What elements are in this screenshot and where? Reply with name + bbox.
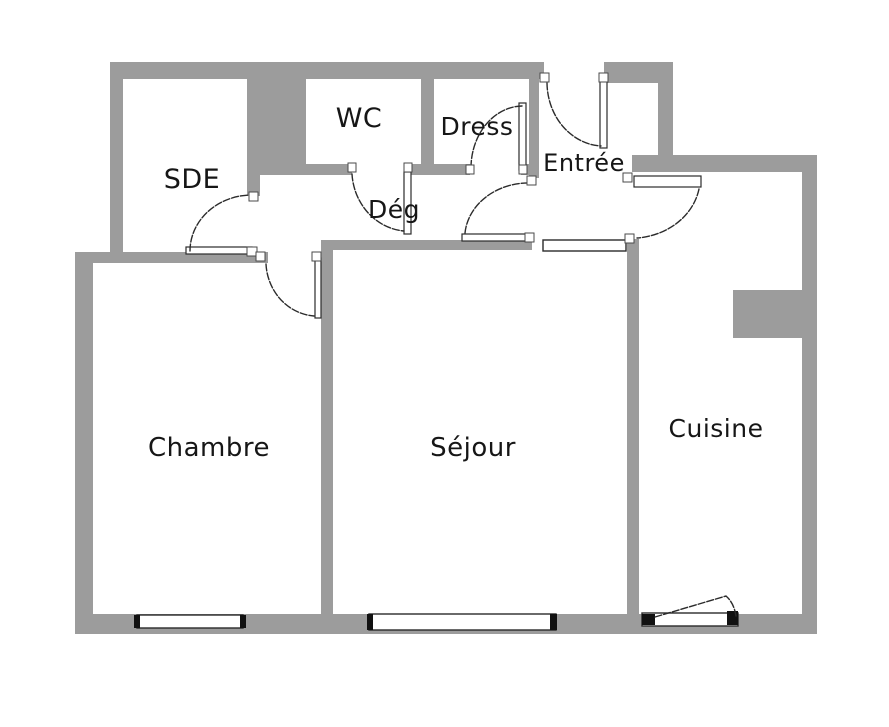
chambre-window [137,615,243,628]
chambre-window-cap-1 [240,615,246,628]
wall-outer-right [802,155,817,634]
wall-sde-left [110,62,123,253]
sejour-window-cap-1 [550,614,557,630]
wall-cuisine-notch [733,290,802,338]
marker-entrance-door-hinge [599,73,608,82]
marker-cuisine-door-jamb [625,234,634,243]
marker-chambre-door-hinge [312,252,321,261]
cuisine-balcony-window-cap-0 [642,614,655,625]
room-label-chambre: Chambre [148,433,270,463]
sde-door-leaf [186,247,252,254]
room-label-sejour: Séjour [430,433,516,463]
room-label-sde: SDE [164,164,221,195]
deg-entree-door-swing-arc [465,183,532,233]
wall-outer-left [75,252,93,634]
dress-door-leaf [519,103,526,170]
cuisine-balcony-window [642,613,738,626]
room-label-entree: Entrée [543,149,625,177]
marker-chambre-door-jamb [256,252,265,261]
marker-sde-door-top-jamb [249,192,258,201]
sejour-window-cap-0 [367,614,373,630]
sejour-window [369,614,556,630]
walls-layer [75,62,817,634]
wall-sejour-cuisine-divider [627,239,639,619]
wall-wc-bottom [247,164,352,175]
wall-entree-right [658,62,673,166]
wall-cuisine-top [632,155,817,172]
entree-cuisine-door-leaf [634,176,701,187]
entree-cuisine-door-swing-arc [637,189,699,238]
marker-dress-door-hinge [519,165,527,174]
marker-wc-door-jamb [348,163,356,172]
room-label-dress: Dress [441,112,514,141]
chambre-door-swing-arc [266,264,314,316]
wall-dress-entree-divider [529,70,539,178]
cuisine-balcony-window-cap-1 [727,611,738,625]
wall-chambre-sejour-divider [321,240,333,619]
marker-dress-door-jamb [466,165,474,174]
marker-deg-door-hinge [525,233,534,242]
wall-top-left [110,62,544,79]
chambre-door-leaf [315,258,321,318]
wall-sde-wc-mass [247,62,306,168]
sde-door-swing-arc [190,195,252,251]
entrance-door-leaf [600,80,607,148]
marker-entrance-door-jamb [540,73,549,82]
entree-sejour-window [543,240,626,251]
wall-dress-bottom [426,164,470,175]
room-label-cuisine: Cuisine [669,414,764,443]
floor-plan: SDEWCDressDégEntréeChambreSéjourCuisine [0,0,889,727]
room-label-deg: Dég [368,195,420,224]
marker-deg-door-top-jamb [527,176,536,185]
deg-entree-door-leaf [462,234,530,241]
floor-plan-svg: SDEWCDressDégEntréeChambreSéjourCuisine [0,0,889,727]
marker-wc-door-hinge [404,163,412,172]
wall-wc-dress-divider [421,70,434,164]
chambre-window-cap-0 [134,615,140,628]
room-label-wc: WC [336,103,383,134]
entrance-door-swing-arc [547,83,601,146]
